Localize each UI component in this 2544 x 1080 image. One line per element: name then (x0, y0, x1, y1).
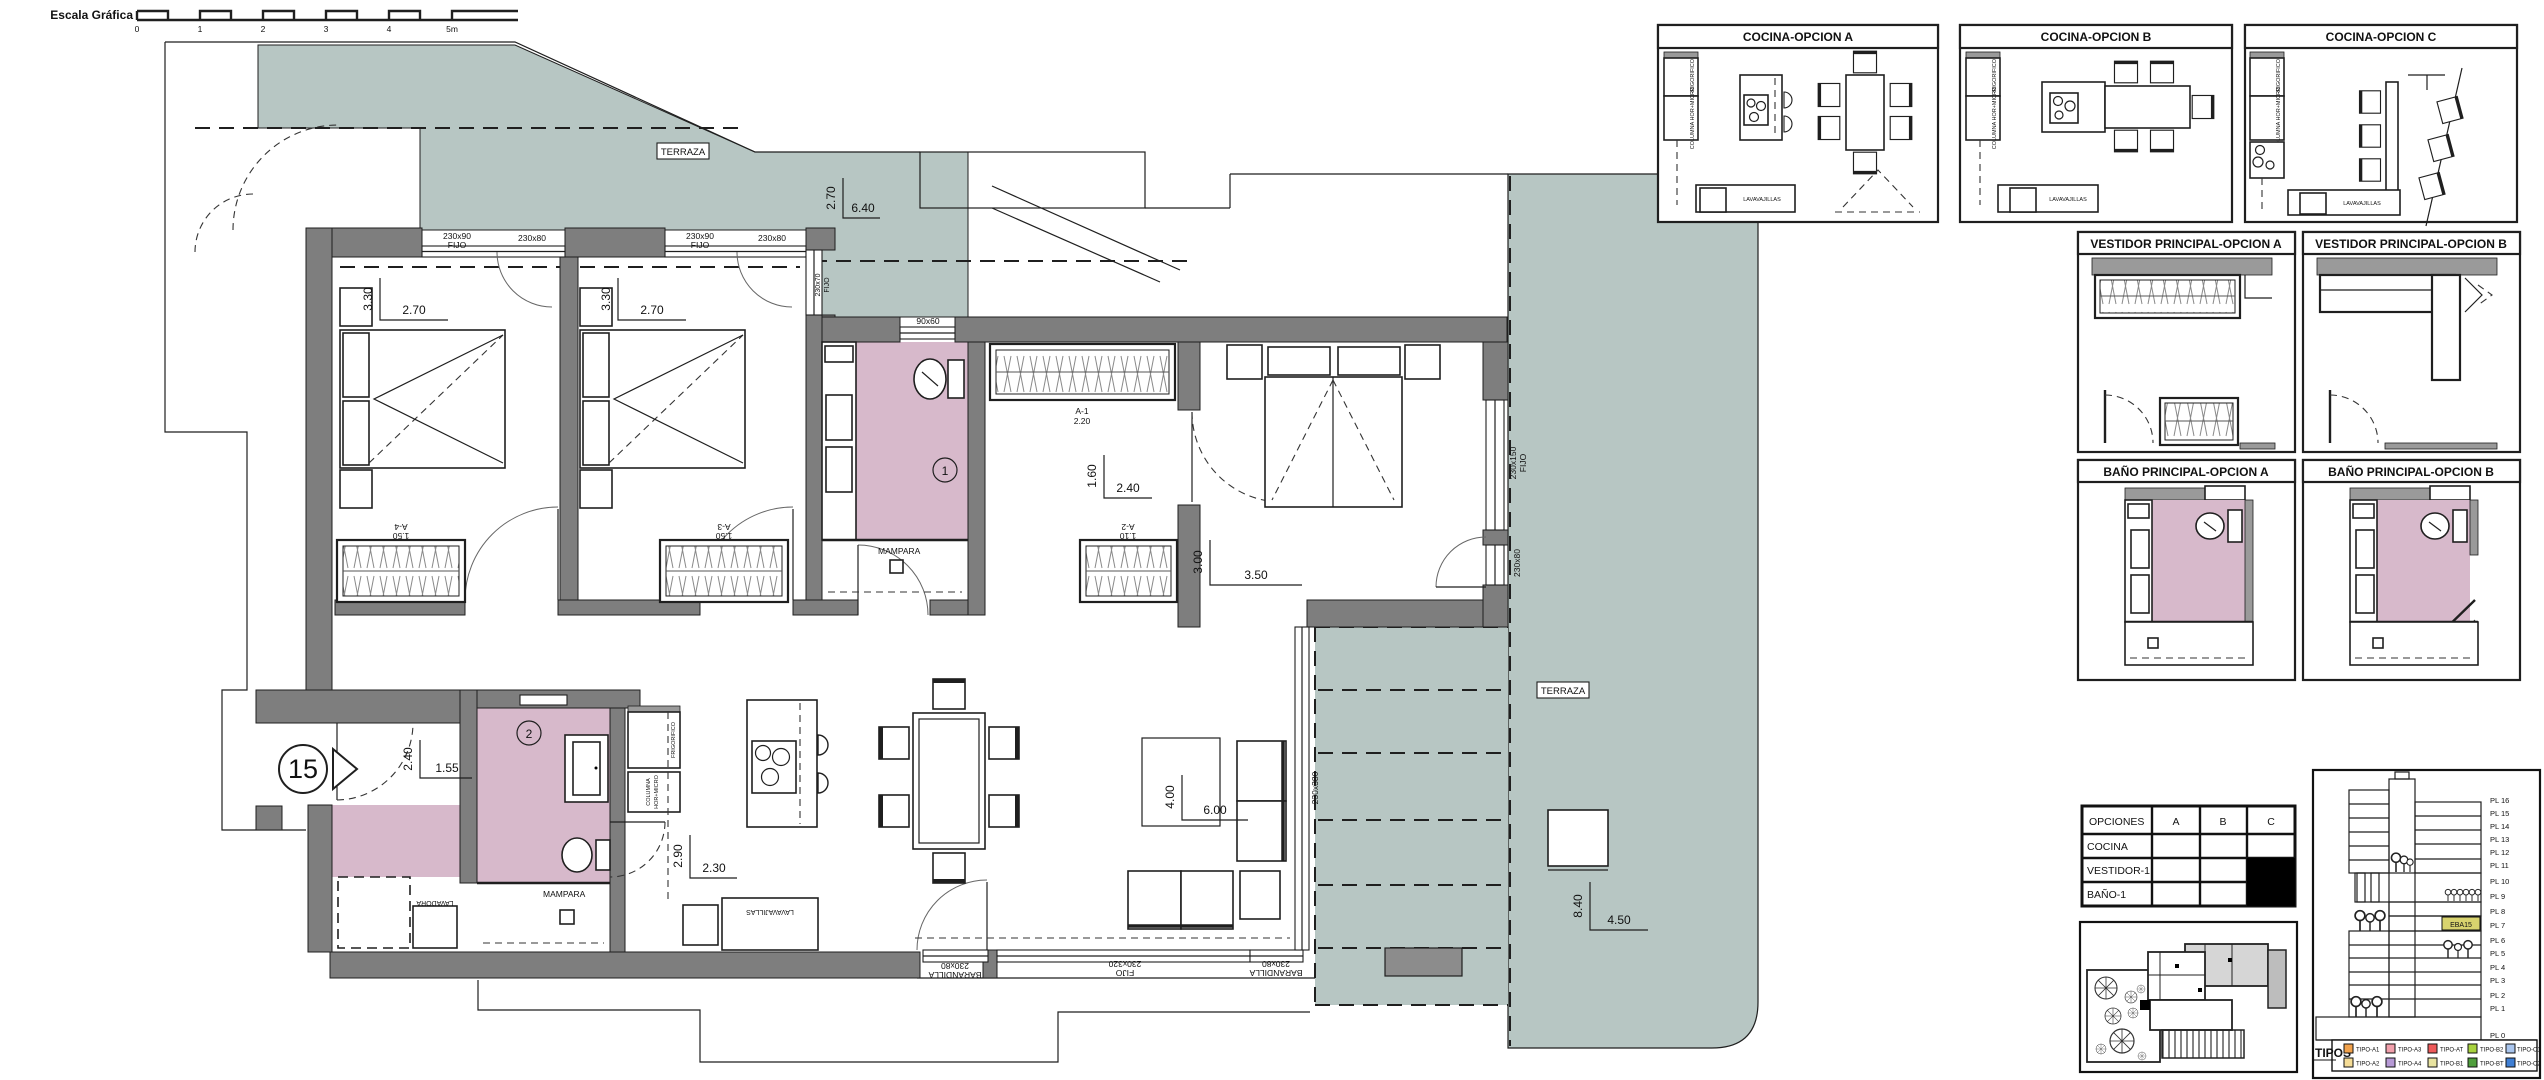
scale-tick: 1 (198, 24, 203, 34)
svg-text:2: 2 (526, 727, 533, 741)
svg-text:COLUMNA HOR+MICRO: COLUMNA HOR+MICRO (1992, 86, 1998, 149)
wardrobe-a2 (1080, 540, 1177, 602)
panel-title: COCINA-OPCION B (2041, 30, 2152, 44)
dining-set (879, 679, 1019, 883)
laundry (338, 877, 457, 948)
svg-text:TIPO-B1: TIPO-B1 (2440, 1062, 2464, 1068)
wardrobe-a3 (660, 540, 788, 602)
svg-text:TIPO-A3: TIPO-A3 (2398, 1048, 2422, 1054)
dim: 3.50 (1244, 568, 1268, 582)
dim: 2.40 (401, 747, 415, 771)
options-table: OPCIONES A B C COCINA VESTIDOR-1 BAÑO-1 (2082, 806, 2295, 906)
table-header: OPCIONES (2089, 816, 2144, 828)
dim: 3.30 (361, 287, 375, 311)
window-label: 230x70 (815, 273, 822, 296)
window-label: FIJO (1518, 453, 1528, 472)
dim: 2.70 (824, 186, 838, 210)
option-selected-bano (2247, 882, 2295, 906)
option-selected-vestidor (2247, 858, 2295, 882)
svg-text:1: 1 (942, 464, 949, 478)
terraza-top (258, 45, 968, 317)
panel-vestidor-a: VESTIDOR PRINCIPAL-OPCION A (2078, 232, 2295, 452)
svg-text:PL 16: PL 16 (2490, 796, 2509, 805)
panel-title: COCINA-OPCION C (2326, 30, 2437, 44)
scale-tick: 2 (261, 24, 266, 34)
bed-master (1227, 345, 1440, 507)
mampara-label: MAMPARA (543, 889, 586, 899)
svg-text:PL 6: PL 6 (2490, 936, 2505, 945)
dim: 1.55 (435, 761, 459, 775)
lavavajillas-label: LAVAVAJILLAS (746, 908, 794, 915)
kitchen (628, 700, 828, 950)
wardrobe-label: A-3 (717, 522, 731, 532)
svg-text:COLUMNA HOR+MICRO: COLUMNA HOR+MICRO (1690, 86, 1696, 149)
window-label: 230x80 (518, 233, 546, 243)
wardrobe-a4 (337, 540, 465, 602)
svg-text:PL 0: PL 0 (2490, 1031, 2505, 1040)
dim: 3.30 (599, 287, 613, 311)
svg-text:LAVAVAJILLAS: LAVAVAJILLAS (1743, 197, 1781, 203)
svg-text:TIPO-BT: TIPO-BT (2480, 1062, 2504, 1068)
dim: 4.50 (1607, 913, 1631, 927)
scale-bar-label: Escala Gráfica (50, 8, 133, 22)
plan-drawing: Escala Gráfica 0 1 2 3 4 5m (0, 0, 2544, 1080)
svg-text:TIPO-B2: TIPO-B2 (2480, 1048, 2504, 1054)
svg-text:LAVAVAJILLAS: LAVAVAJILLAS (2343, 201, 2381, 207)
wardrobe-a1 (990, 344, 1175, 400)
svg-text:TIPO-A2: TIPO-A2 (2356, 1062, 2380, 1068)
table-row-label: VESTIDOR-1 (2087, 865, 2150, 877)
table-row-label: COCINA (2087, 841, 2128, 853)
svg-text:TIPO-C2: TIPO-C2 (2517, 1062, 2541, 1068)
wardrobe-label: A-1 (1075, 406, 1089, 416)
window-label: 230x380 (1310, 771, 1320, 804)
window-label: FIJO (824, 277, 831, 293)
wardrobe-label: 1.50 (392, 531, 409, 541)
panel-cocina-c: COCINA-OPCION C FRIGORIFICO COLUMNA HOR+… (2245, 25, 2517, 226)
svg-text:PL 14: PL 14 (2490, 822, 2509, 831)
scale-bar: Escala Gráfica 0 1 2 3 4 5m (50, 8, 518, 34)
window-label: FIJO (691, 240, 710, 250)
scale-tick: 5m (446, 24, 458, 34)
svg-text:PL 4: PL 4 (2490, 963, 2505, 972)
window-label: 230x80 (1512, 549, 1522, 577)
dim: 2.90 (671, 844, 685, 868)
window-label: 230x150 (1508, 446, 1518, 479)
svg-text:PL 11: PL 11 (2490, 861, 2509, 870)
dim: 4.00 (1163, 785, 1177, 809)
panel-title: VESTIDOR PRINCIPAL-OPCION A (2090, 237, 2282, 251)
frigorifico-label: FRIGORIFICO (671, 721, 677, 758)
svg-text:PL 3: PL 3 (2490, 976, 2505, 985)
panel-cocina-b: COCINA-OPCION B FRIGORIFICO COLUMNA HOR+… (1960, 25, 2232, 222)
table-header: B (2219, 816, 2226, 828)
svg-text:TIPO-C1: TIPO-C1 (2517, 1048, 2541, 1054)
columna-label2: HOR+MICRO (654, 774, 660, 808)
svg-text:TIPO-A1: TIPO-A1 (2356, 1048, 2380, 1054)
svg-text:PL 2: PL 2 (2490, 991, 2505, 1000)
window-label: FIJO (448, 240, 467, 250)
table-header: C (2267, 816, 2275, 828)
svg-text:PL 5: PL 5 (2490, 949, 2505, 958)
dim: 2.40 (1116, 481, 1140, 495)
svg-text:TERRAZA: TERRAZA (661, 147, 706, 158)
svg-text:TIPO-A4: TIPO-A4 (2398, 1062, 2422, 1068)
svg-text:LAVAVAJILLAS: LAVAVAJILLAS (2049, 197, 2087, 203)
window-label: FIJO (1115, 968, 1134, 978)
terraza-right-label: TERRAZA (1537, 682, 1589, 698)
table-row-label: BAÑO-1 (2087, 888, 2126, 901)
dim: 2.70 (402, 303, 426, 317)
window-label: BARANDILLA (928, 970, 981, 980)
key-plan (2080, 922, 2297, 1072)
svg-text:PL 15: PL 15 (2490, 809, 2509, 818)
dim: 2.70 (640, 303, 664, 317)
window-label: 230x80 (941, 961, 969, 971)
entrance-arrow-icon (333, 749, 357, 789)
scale-tick: 0 (135, 24, 140, 34)
svg-text:PL 12: PL 12 (2490, 848, 2509, 857)
svg-text:PL 13: PL 13 (2490, 835, 2509, 844)
kitchen-island (747, 700, 828, 827)
wardrobe-label: 2.20 (1074, 416, 1091, 426)
svg-text:TIPO-AT: TIPO-AT (2440, 1048, 2464, 1054)
panel-title: VESTIDOR PRINCIPAL-OPCION B (2315, 237, 2507, 251)
wardrobe-label: A-2 (1121, 522, 1135, 532)
table-header: A (2172, 816, 2179, 828)
highlighted-unit-label: EBA15 (2450, 922, 2472, 929)
svg-text:COLUMNA HOR+MICRO: COLUMNA HOR+MICRO (2276, 86, 2282, 149)
window-label: BARANDILLA (1249, 968, 1302, 978)
mampara-label: MAMPARA (878, 546, 921, 556)
lavadora-label: LAVADORA (416, 899, 453, 906)
scale-tick: 3 (324, 24, 329, 34)
planter (1385, 948, 1462, 976)
columna-label: COLUMNA (646, 778, 652, 806)
window-label: 230x80 (758, 233, 786, 243)
svg-text:TERRAZA: TERRAZA (1541, 686, 1586, 697)
window-label: 90x60 (916, 316, 939, 326)
dim: 3.00 (1191, 550, 1205, 574)
wardrobe-label: 1.50 (715, 531, 732, 541)
bed-2 (580, 288, 745, 508)
panel-title: BAÑO PRINCIPAL-OPCION B (2328, 464, 2494, 479)
bed-1 (340, 288, 505, 508)
panel-bano-b: BAÑO PRINCIPAL-OPCION B (2303, 460, 2520, 680)
svg-text:PL 1: PL 1 (2490, 1004, 2505, 1013)
panel-bano-a: BAÑO PRINCIPAL-OPCION A (2078, 460, 2295, 680)
dim: 1.60 (1085, 464, 1099, 488)
dim: 8.40 (1571, 894, 1585, 918)
panel-cocina-a: COCINA-OPCION A FRIGORIFICO COLUMNA HOR+… (1658, 25, 1938, 222)
dim: 6.00 (1203, 803, 1227, 817)
dim: 6.40 (851, 201, 875, 215)
laundry-floor (318, 805, 467, 877)
wardrobe-label: 1.10 (1119, 531, 1136, 541)
terraza-top-label: TERRAZA (657, 143, 709, 159)
panel-title: BAÑO PRINCIPAL-OPCION A (2103, 464, 2269, 479)
panel-title: COCINA-OPCION A (1743, 30, 1854, 44)
floorplan-sheet: Escala Gráfica 0 1 2 3 4 5m (0, 0, 2544, 1080)
svg-text:PL 7: PL 7 (2490, 921, 2505, 930)
elevation-key: EBA15 PL 16 PL 15 PL 14 PL 13 PL 12 PL 1… (2313, 770, 2541, 1078)
svg-text:PL 8: PL 8 (2490, 907, 2505, 916)
window-label: 230x80 (1262, 959, 1290, 969)
window-label: 230x320 (1108, 959, 1141, 969)
svg-text:15: 15 (288, 754, 318, 784)
unit-entrance-marker: 15 (279, 745, 357, 793)
panel-vestidor-b: VESTIDOR PRINCIPAL-OPCION B (2303, 232, 2520, 452)
wardrobe-label: A-4 (394, 522, 408, 532)
svg-text:PL 10: PL 10 (2490, 877, 2509, 886)
scale-tick: 4 (387, 24, 392, 34)
tipos-legend: TIPOS TIPO-A1 TIPO-A3 TIPO-AT TIPO-B2 TI… (2314, 1040, 2541, 1071)
svg-text:PL 9: PL 9 (2490, 892, 2505, 901)
dim: 2.30 (702, 861, 726, 875)
